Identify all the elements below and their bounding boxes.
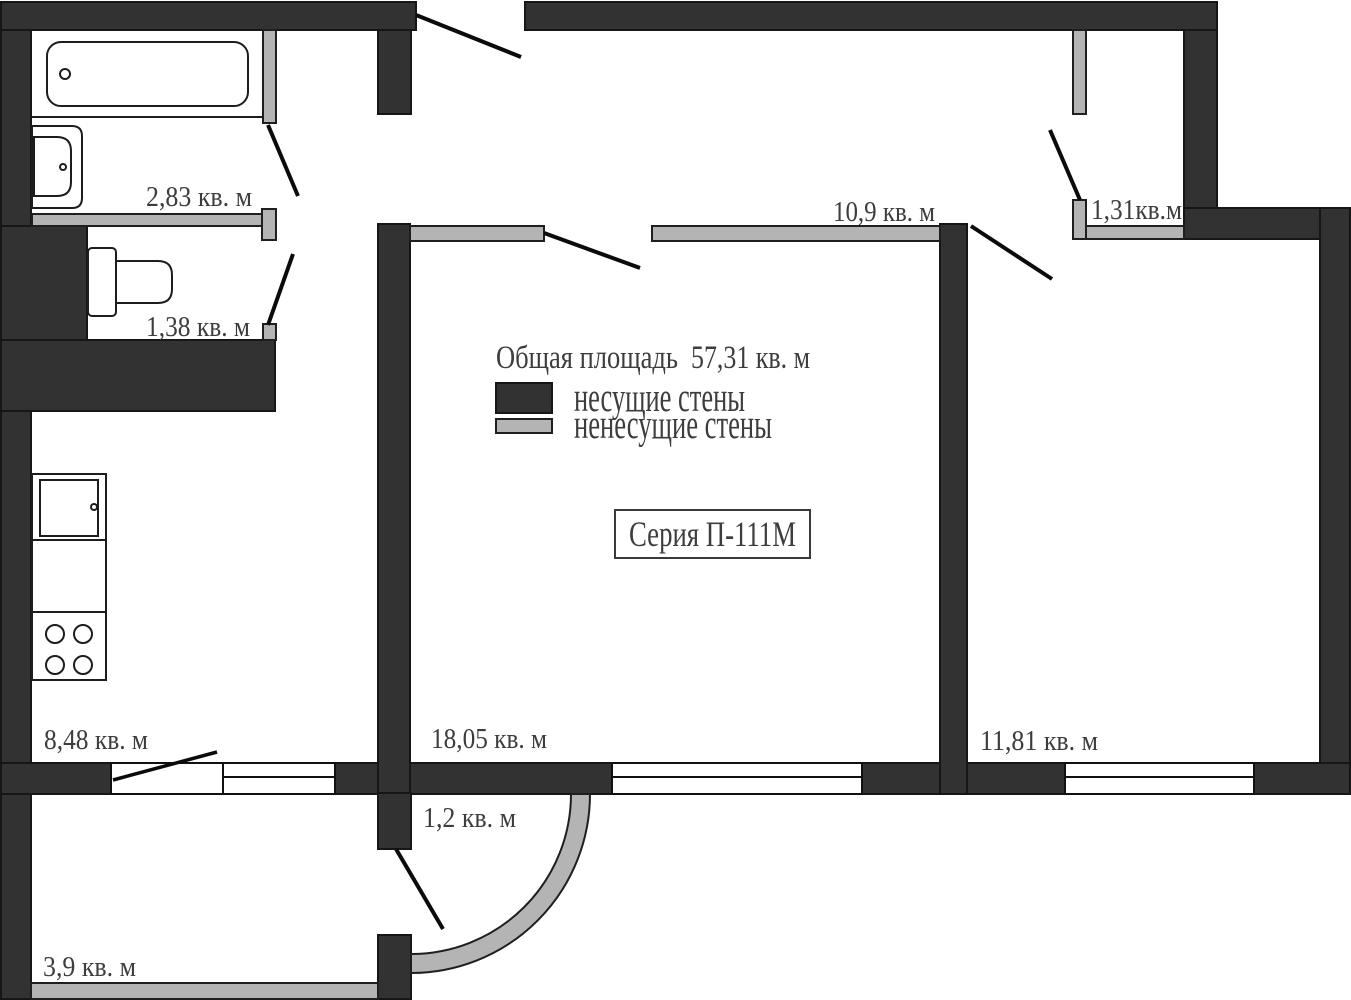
svg-text:2,83 кв. м: 2,83 кв. м [146, 182, 252, 213]
svg-text:10,9 кв. м: 10,9 кв. м [833, 197, 935, 228]
svg-text:1,31кв.м: 1,31кв.м [1091, 195, 1182, 226]
svg-text:11,81 кв. м: 11,81 кв. м [980, 726, 1098, 757]
svg-text:1,38 кв. м: 1,38 кв. м [146, 312, 250, 343]
svg-text:Серия П-111М: Серия П-111М [629, 514, 796, 554]
svg-text:1,2 кв. м: 1,2 кв. м [423, 803, 516, 834]
svg-text:8,48 кв. м: 8,48 кв. м [44, 725, 148, 756]
svg-text:57,31 кв. м: 57,31 кв. м [691, 340, 810, 376]
svg-text:18,05 кв. м: 18,05 кв. м [431, 724, 547, 755]
svg-text:Общая площадь: Общая площадь [496, 340, 678, 376]
svg-text:3,9 кв. м: 3,9 кв. м [43, 952, 136, 983]
svg-text:ненесущие стены: ненесущие стены [574, 401, 772, 447]
